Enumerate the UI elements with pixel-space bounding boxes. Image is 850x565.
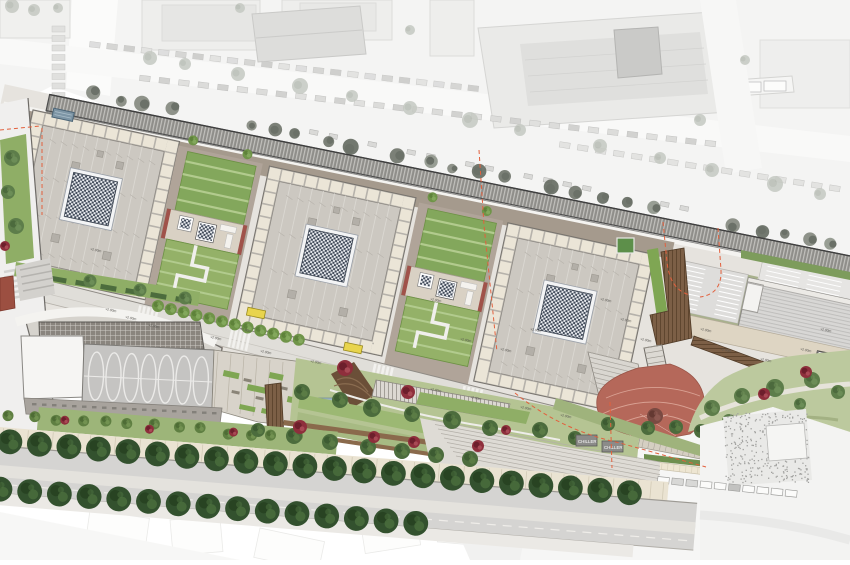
svg-text:CHILLER: CHILLER — [578, 439, 597, 444]
svg-text:CHILLER: CHILLER — [604, 445, 623, 450]
